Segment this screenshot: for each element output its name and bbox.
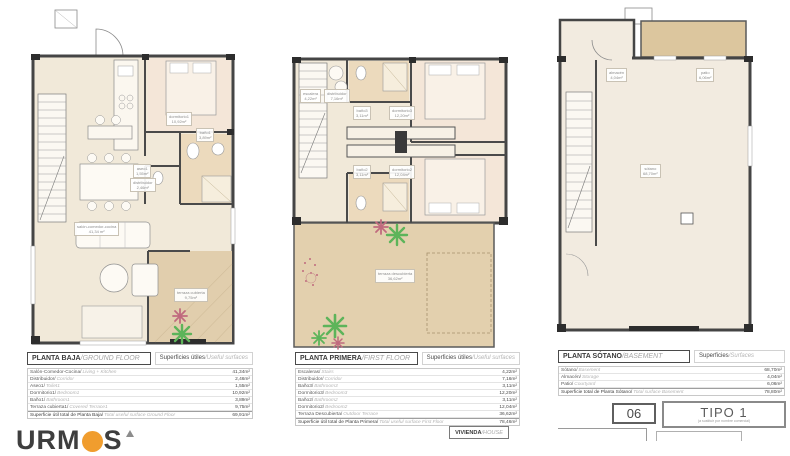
basement-table-title: PLANTA SÓTANO/BASEMENT <box>558 350 690 363</box>
vivienda-label: VIVIENDA/HOUSE <box>449 426 509 439</box>
pillar-box <box>681 213 693 224</box>
company-logo: URM S <box>16 426 134 456</box>
table-row: Terraza Descubierta/Outdoor Terrace36,62… <box>296 411 519 418</box>
room-label-terraza-descubierta: terraza descubierta36,62m² <box>375 269 415 283</box>
round-table <box>100 264 128 292</box>
table-row: Baño2/Bathroom23,11m² <box>296 397 519 404</box>
stairs <box>38 94 66 222</box>
table-row: Sótano/Basement68,70m² <box>559 367 784 374</box>
logo-text-right: S <box>104 426 123 454</box>
annex-seam <box>562 48 632 62</box>
plant-red-icon <box>332 337 344 349</box>
room-label-dormitorio2: dormitorio212,04m² <box>389 165 415 179</box>
first-floor-surfaces-label: Superficies útiles/Useful surfaces <box>422 352 520 365</box>
ground-floor-plan: salón-comedor-cocina41,34 m² dormitorio1… <box>30 6 238 346</box>
tv-bench <box>82 306 142 338</box>
room-label-salon: salón-comedor-cocina41,34 m² <box>74 222 119 236</box>
basement-surfaces-label: Superficies/Surfaces <box>694 350 785 363</box>
bed1 <box>166 61 216 115</box>
ground-floor-surfaces-label: Superficies útiles/Useful surfaces <box>155 352 253 365</box>
plan-sheet: { "colors": { "wall": "#454545", "room_f… <box>0 0 790 440</box>
room-label-aseo1: aseo11,55m² <box>133 164 151 178</box>
table-row: Baño1/Bathroom13,89m² <box>28 397 252 404</box>
bed3 <box>425 63 485 119</box>
table-row: Distribuidor/Corridor2,46m² <box>28 376 252 383</box>
table-row: Almacén/Storage4,04m² <box>559 374 784 381</box>
room-label-sotano: sótano68,70m² <box>640 164 661 178</box>
logo-text-left: URM <box>16 426 81 454</box>
room-label-bano1: baño13,89m² <box>196 128 214 142</box>
room-label-dormitorio1: dormitorio110,92m² <box>166 112 192 126</box>
armchair <box>132 264 158 296</box>
entry-door-arc <box>96 29 123 56</box>
first-floor-table: PLANTA PRIMERA/FIRST FLOOR Superficies ú… <box>295 352 520 426</box>
room-label-escalera: escalera4,22m² <box>300 89 321 103</box>
table-row: Dormitorio1/Bedroom110,92m² <box>28 390 252 397</box>
bed2 <box>425 159 485 215</box>
room-label-dormitorio3: dormitorio312,20m² <box>389 106 415 120</box>
table-row: Terraza cubierta1/Covered Terrace19,75m² <box>28 404 252 411</box>
room-label-distribuidor: distribuidor2,46m² <box>130 178 156 192</box>
table-row: Aseo1/Toilet11,55m² <box>28 383 252 390</box>
room-label-bano3: baño33,11m² <box>353 106 371 120</box>
ground-floor-table: PLANTA BAJA/GROUND FLOOR Superficies úti… <box>27 352 253 419</box>
logo-mark-icon <box>126 430 134 437</box>
table-row: Dormitorio2/Bedroom212,04m² <box>296 404 519 411</box>
table-total-row: Superficie útil total de Planta Baja/Tot… <box>28 411 252 418</box>
first-floor-plan: escalera4,22m² distribuidor7,16m² baño33… <box>291 53 513 350</box>
room-label-patio: patio6,06m² <box>696 68 714 82</box>
room-label-distribuidor: distribuidor7,16m² <box>324 89 350 103</box>
table-row: Salón-Comedor-Cocina/Living + Kitchen41,… <box>28 369 252 376</box>
table-total-row: Superficie total de Planta Sótano/Total … <box>559 388 784 395</box>
stairs <box>299 63 327 178</box>
basement-plan: almacén4,04m² patio6,06m² sótano68,70m² <box>554 6 754 340</box>
open-terrace-area <box>294 223 494 347</box>
table-row: Baño3/Bathroom33,11m² <box>296 383 519 390</box>
plant-green-icon <box>324 315 346 337</box>
room-label-bano2: baño23,11m² <box>353 165 371 179</box>
type-box: TIPO 1 (a sustituir por nombre comercial… <box>662 401 786 428</box>
room-label-almacen: almacén4,04m² <box>606 68 627 82</box>
first-floor-table-title: PLANTA PRIMERA/FIRST FLOOR <box>295 352 418 365</box>
plant-red-icon <box>374 220 388 234</box>
table-row: Patio/Courtyard6,06m² <box>559 381 784 388</box>
table-row: Distribuidor/Corridor7,16m² <box>296 376 519 383</box>
sheet-number-box: 06 <box>612 403 656 424</box>
table-total-row: Superficie útil total de Planta Primera/… <box>296 418 519 425</box>
logo-orange-dot-icon <box>82 431 103 452</box>
ground-floor-table-title: PLANTA BAJA/GROUND FLOOR <box>27 352 151 365</box>
table-row: Escaleras/Stairs4,22m² <box>296 369 519 376</box>
plant-green-icon <box>312 331 326 345</box>
patio-area <box>641 21 746 57</box>
plant-green-icon <box>173 325 191 343</box>
basement-table: PLANTA SÓTANO/BASEMENT Superficies/Surfa… <box>558 350 785 396</box>
plant-green-icon <box>387 225 407 245</box>
table-row: Dormitorio3/Bedroom312,20m² <box>296 390 519 397</box>
titleblock-frame-line <box>558 428 647 441</box>
room-label-terraza-cubierta: terraza cubierta9,75m² <box>174 288 208 302</box>
plant-red-icon <box>173 309 187 323</box>
